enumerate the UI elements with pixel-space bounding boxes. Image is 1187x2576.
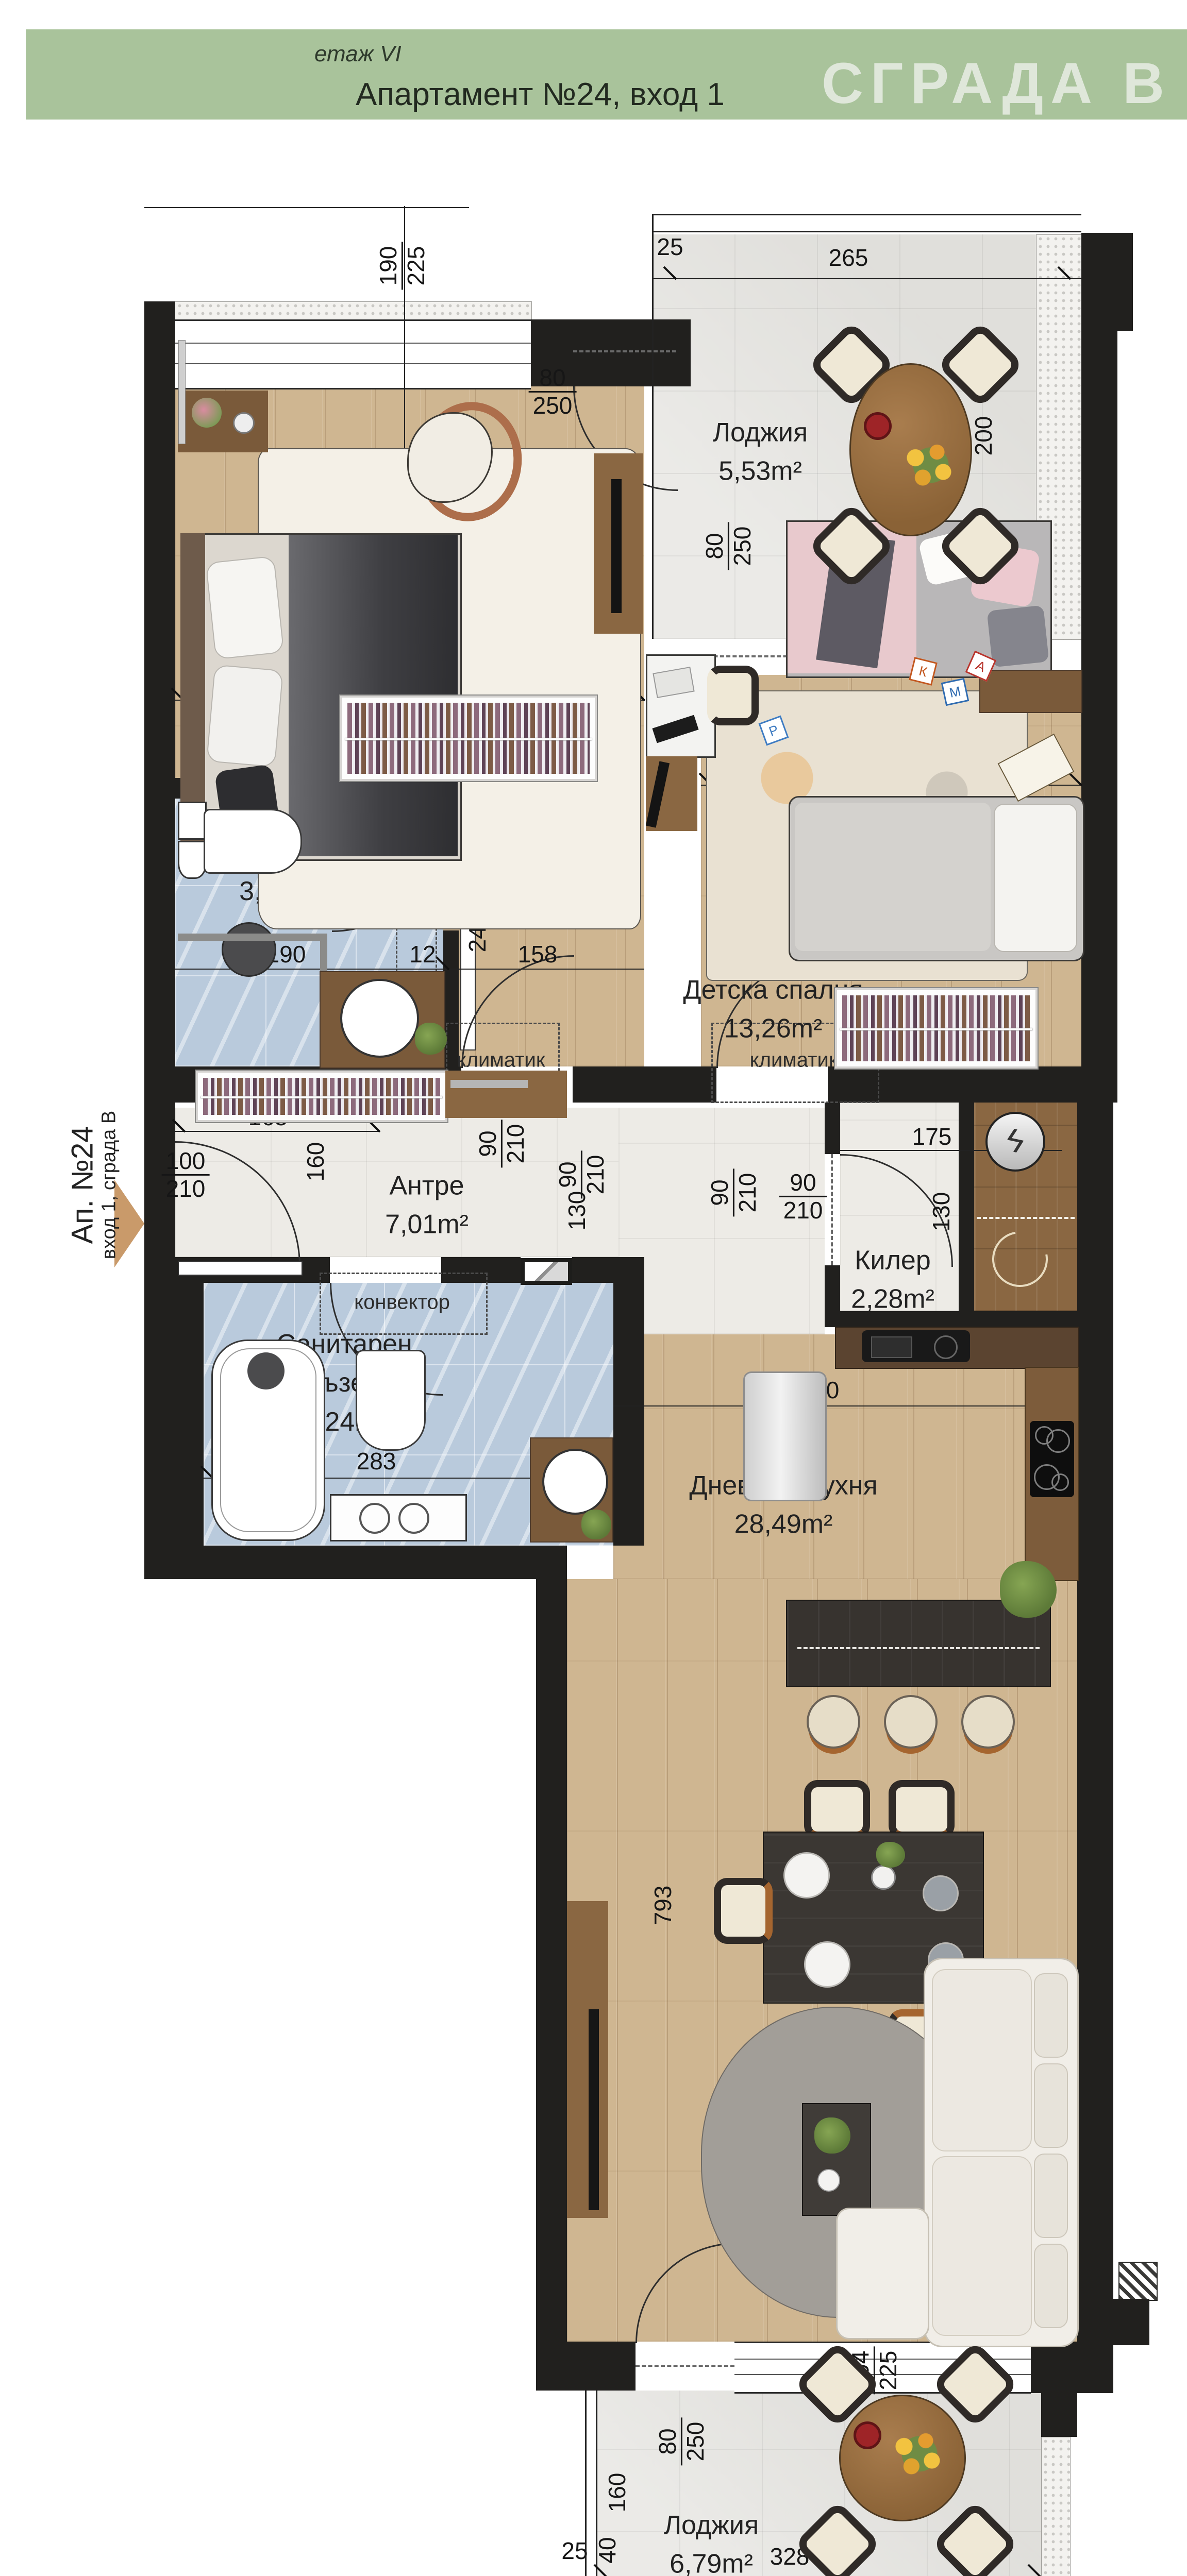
bedroom-lamp: [233, 412, 255, 434]
dim-living-balcony-door: 80250: [655, 2418, 708, 2466]
dim-hall-130: 130: [563, 1191, 591, 1231]
bath1-shower-head: [222, 922, 276, 977]
building-label: СГРАДА В: [822, 50, 1172, 116]
coffee-table-plant: [814, 2117, 850, 2154]
wall-kiler-west-a: [825, 1103, 840, 1154]
sofa-seat-cushion-1: [932, 1969, 1032, 2151]
dining-plate-1: [783, 1852, 830, 1899]
entrance-apartment-label: Ап. №24: [65, 1126, 100, 1244]
bar-stool-2: [884, 1695, 938, 1749]
bath2-toilet: [356, 1350, 426, 1451]
dim-storage-h: 130: [927, 1192, 955, 1232]
wall-west-living: [536, 1546, 567, 2391]
dim-entrance-door: 100210: [162, 1148, 210, 1201]
fridge: [743, 1371, 827, 1501]
bath2-sink: [542, 1449, 608, 1515]
insulation-loggia-bottom-east: [1041, 2437, 1071, 2576]
bath2-washer: [330, 1494, 467, 1541]
convector-label-2: конвектор: [354, 1291, 450, 1314]
bedroom-flower-pot: [192, 398, 222, 428]
wall-south-living-w: [567, 2342, 636, 2391]
dim-living-793: 793: [649, 1886, 677, 1925]
bath1-toilet: [204, 809, 302, 874]
dimline-hall-165: [175, 1131, 379, 1132]
loggia-top-name: Лоджия: [713, 414, 808, 452]
dim-top-window: 190225: [375, 242, 429, 290]
sofa-seat-cushion-2: [932, 2156, 1032, 2336]
entrance-door-leaf: [178, 1261, 303, 1276]
hallway-area: 7,01m²: [385, 1206, 469, 1244]
loggia-bottom-area: 6,79m²: [664, 2545, 759, 2576]
hallway-name: Антре: [385, 1167, 469, 1206]
loggia-top-cup: [864, 412, 892, 440]
wall-bath2-top-c: [572, 1257, 613, 1283]
kids-bed-duvet: [795, 803, 991, 951]
electric-glyph: ϟ: [1001, 1113, 1030, 1169]
dim-kids-balcony-door: 80250: [701, 522, 755, 570]
bath1-vent-2: [178, 841, 207, 879]
wall-east-living: [1077, 1103, 1113, 2393]
dim-bath2-w: 283: [357, 1447, 396, 1475]
bath1-plant: [415, 1023, 447, 1055]
wall-loggia-post-ne: [1081, 233, 1133, 331]
hall-shelf: [445, 1071, 567, 1118]
loggia-top-label: Лоджия 5,53m²: [713, 414, 808, 492]
ac-label-bedroom: климатик: [457, 1049, 545, 1072]
wall-kiler-east: [959, 1103, 974, 1327]
shaft-dashed-line: [977, 1217, 1075, 1219]
dining-chair-5: [714, 1878, 773, 1944]
loggia-top-glazing-2: [652, 231, 1081, 232]
kids-desk-chair: [707, 666, 759, 725]
kids-daybed-pillow-3: [987, 605, 1049, 668]
dim-wall-12a: 12: [409, 940, 436, 968]
sofa-back-cushion-3: [1034, 2154, 1068, 2238]
dim-loggia-b-160: 160: [603, 2473, 631, 2513]
kids-nightstand: [979, 670, 1082, 713]
island-plant: [1000, 1561, 1057, 1618]
bathroom2-window: [521, 1258, 572, 1285]
dim-bathroom2-door: 90210: [475, 1120, 528, 1168]
bar-stool-1: [807, 1695, 860, 1749]
dim-loggia-b-25: 25: [561, 2537, 588, 2565]
wall-bath2-east: [613, 1257, 644, 1546]
dim-hall-160: 160: [302, 1142, 329, 1182]
dim-kids-door: 90210: [707, 1169, 760, 1217]
dining-plate-2: [804, 1941, 850, 1988]
wall-east-kids: [1081, 331, 1117, 1103]
dimline-top-left: [144, 207, 469, 208]
wall-west: [144, 301, 175, 1579]
living-tv-panel: [567, 1901, 608, 2218]
bath2-plant: [581, 1510, 611, 1539]
loggia-b-flowers: [885, 2427, 947, 2483]
bedroom-radiator: [178, 340, 186, 444]
dim-seg-158: 158: [518, 940, 558, 968]
dim-storage-door: 90210: [779, 1170, 827, 1223]
toy-cube-2: М: [941, 678, 969, 706]
dimline-kitchen-360: [613, 1405, 1077, 1406]
loggia-top-glazing-1: [652, 214, 1081, 215]
storage-label: Килер 2,28m²: [851, 1242, 934, 1319]
dimline-loggia-top: [652, 278, 1081, 279]
sofa-chaise: [836, 2208, 929, 2340]
bedroom-tv: [611, 479, 622, 613]
dining-vase: [871, 1865, 896, 1890]
storage-door-threshold: [831, 1154, 833, 1265]
floor-plan-page: СГРАДА В етаж VI Апартамент №24, вход 1: [0, 0, 1187, 2576]
living-tv: [589, 2009, 599, 2210]
sofa-back-cushion-1: [1034, 1973, 1068, 2058]
kids-wardrobe: [835, 988, 1038, 1069]
bed-pillow-2: [206, 665, 283, 768]
bath1-shower-glass-h: [178, 934, 327, 941]
hall-closet: [196, 1071, 447, 1122]
kids-bed-pillow: [994, 804, 1077, 952]
entrance-info-label: вход 1, сграда В: [98, 1111, 121, 1259]
dining-greens: [876, 1842, 905, 1868]
bath2-tub-faucet: [247, 1352, 285, 1389]
bar-stool-3: [961, 1695, 1015, 1749]
loggia-b-cup: [854, 2421, 881, 2449]
hatch-corner: [1118, 2262, 1158, 2301]
storage-name: Килер: [851, 1242, 934, 1280]
wall-loggia-b-post-e1: [1041, 2393, 1077, 2437]
dim-bedroom-balcony-door: 80250: [529, 365, 577, 418]
dim-loggia-b-40: 40: [593, 2537, 621, 2563]
loggia-bottom-name: Лоджия: [664, 2506, 759, 2545]
dim-loggia-top-offset: 25: [657, 233, 683, 261]
cooktop: [1030, 1421, 1074, 1497]
loggia-bottom-label: Лоджия 6,79m²: [664, 2506, 759, 2576]
bedroom-balcony-door-threshold: [573, 350, 676, 352]
bedroom-window: [175, 319, 531, 389]
living-balcony-door-threshold: [636, 2365, 734, 2367]
dim-storage-w: 175: [912, 1123, 952, 1150]
hallway-label: Антре 7,01m²: [385, 1167, 469, 1245]
kitchen-sink: [862, 1330, 970, 1362]
wall-bath2-south: [144, 1546, 536, 1579]
living-area: 28,49m²: [689, 1505, 877, 1544]
loggia-top-flowers: [897, 438, 959, 495]
insulation-top: [144, 301, 532, 320]
wall-south-living-e: [1031, 2342, 1077, 2393]
dining-chair-1: [804, 1780, 870, 1839]
dim-loggia-top-w: 265: [829, 244, 868, 272]
electric-panel-symbol: ϟ: [985, 1112, 1045, 1172]
loggia-top-area: 5,53m²: [713, 452, 808, 491]
bath1-vent-1: [178, 802, 207, 840]
wall-step-se: [1113, 2299, 1149, 2345]
sofa-back-cushion-4: [1034, 2244, 1068, 2328]
dim-loggia-top-h: 200: [969, 416, 997, 456]
floor-label: етаж VI: [314, 41, 402, 67]
dining-chair-2: [889, 1780, 955, 1839]
dining-plate-3: [923, 1875, 959, 1911]
coffee-table-vase: [817, 2169, 840, 2192]
bed-pillow-1: [205, 556, 284, 660]
wall-bath2-west: [175, 1283, 204, 1546]
ac-label-kids: климатик: [750, 1049, 838, 1072]
wall-south-bedroom-2: [573, 1066, 716, 1103]
bedroom-wardrobe: [340, 696, 597, 781]
sofa-back-cushion-2: [1034, 2063, 1068, 2148]
storage-area: 2,28m²: [851, 1280, 934, 1319]
bath1-sink: [340, 979, 419, 1058]
apartment-title: Апартамент №24, вход 1: [356, 76, 725, 113]
